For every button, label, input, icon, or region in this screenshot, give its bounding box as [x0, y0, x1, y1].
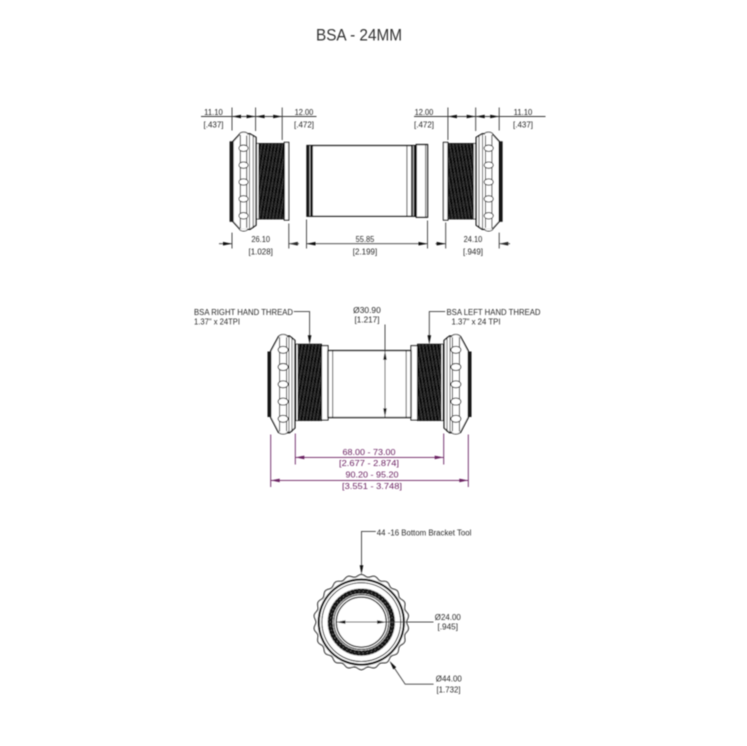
svg-text:11.10: 11.10: [514, 107, 533, 117]
svg-text:BSA - 24MM: BSA - 24MM: [316, 26, 402, 45]
svg-text:1.37" x 24 TPI: 1.37" x 24 TPI: [452, 317, 501, 326]
svg-text:[3.551 - 3.748]: [3.551 - 3.748]: [342, 481, 402, 491]
svg-text:55.85: 55.85: [356, 234, 375, 244]
svg-text:[.472]: [.472]: [414, 119, 434, 129]
svg-text:44 -16 Bottom Bracket Tool: 44 -16 Bottom Bracket Tool: [377, 528, 472, 537]
svg-text:1.37" x 24TPI: 1.37" x 24TPI: [194, 317, 240, 326]
svg-text:[1.028]: [1.028]: [249, 246, 273, 256]
svg-text:BSA LEFT HAND THREAD: BSA LEFT HAND THREAD: [447, 308, 541, 317]
svg-text:[1.217]: [1.217]: [355, 314, 380, 324]
svg-text:BSA RIGHT HAND THREAD: BSA RIGHT HAND THREAD: [194, 308, 293, 317]
svg-text:[.472]: [.472]: [294, 119, 314, 129]
svg-text:[.949]: [.949]: [463, 246, 483, 256]
svg-text:68.00 - 73.00: 68.00 - 73.00: [343, 447, 396, 457]
svg-text:[1.732]: [1.732]: [437, 684, 461, 694]
svg-text:24.10: 24.10: [464, 234, 483, 244]
svg-text:[2.199]: [2.199]: [353, 246, 377, 256]
svg-text:12.00: 12.00: [295, 107, 314, 117]
svg-text:11.10: 11.10: [204, 107, 223, 117]
svg-text:12.00: 12.00: [415, 107, 434, 117]
svg-text:[.437]: [.437]: [204, 119, 224, 129]
svg-text:Ø24.00: Ø24.00: [435, 612, 461, 622]
svg-text:[2.677 - 2.874]: [2.677 - 2.874]: [339, 458, 399, 468]
svg-text:26.10: 26.10: [251, 234, 270, 244]
svg-text:Ø44.00: Ø44.00: [436, 674, 462, 684]
svg-text:90.20 - 95.20: 90.20 - 95.20: [346, 470, 399, 480]
svg-text:[.437]: [.437]: [513, 119, 533, 129]
svg-text:[.945]: [.945]: [438, 622, 459, 632]
svg-text:Ø30.90: Ø30.90: [353, 305, 381, 315]
